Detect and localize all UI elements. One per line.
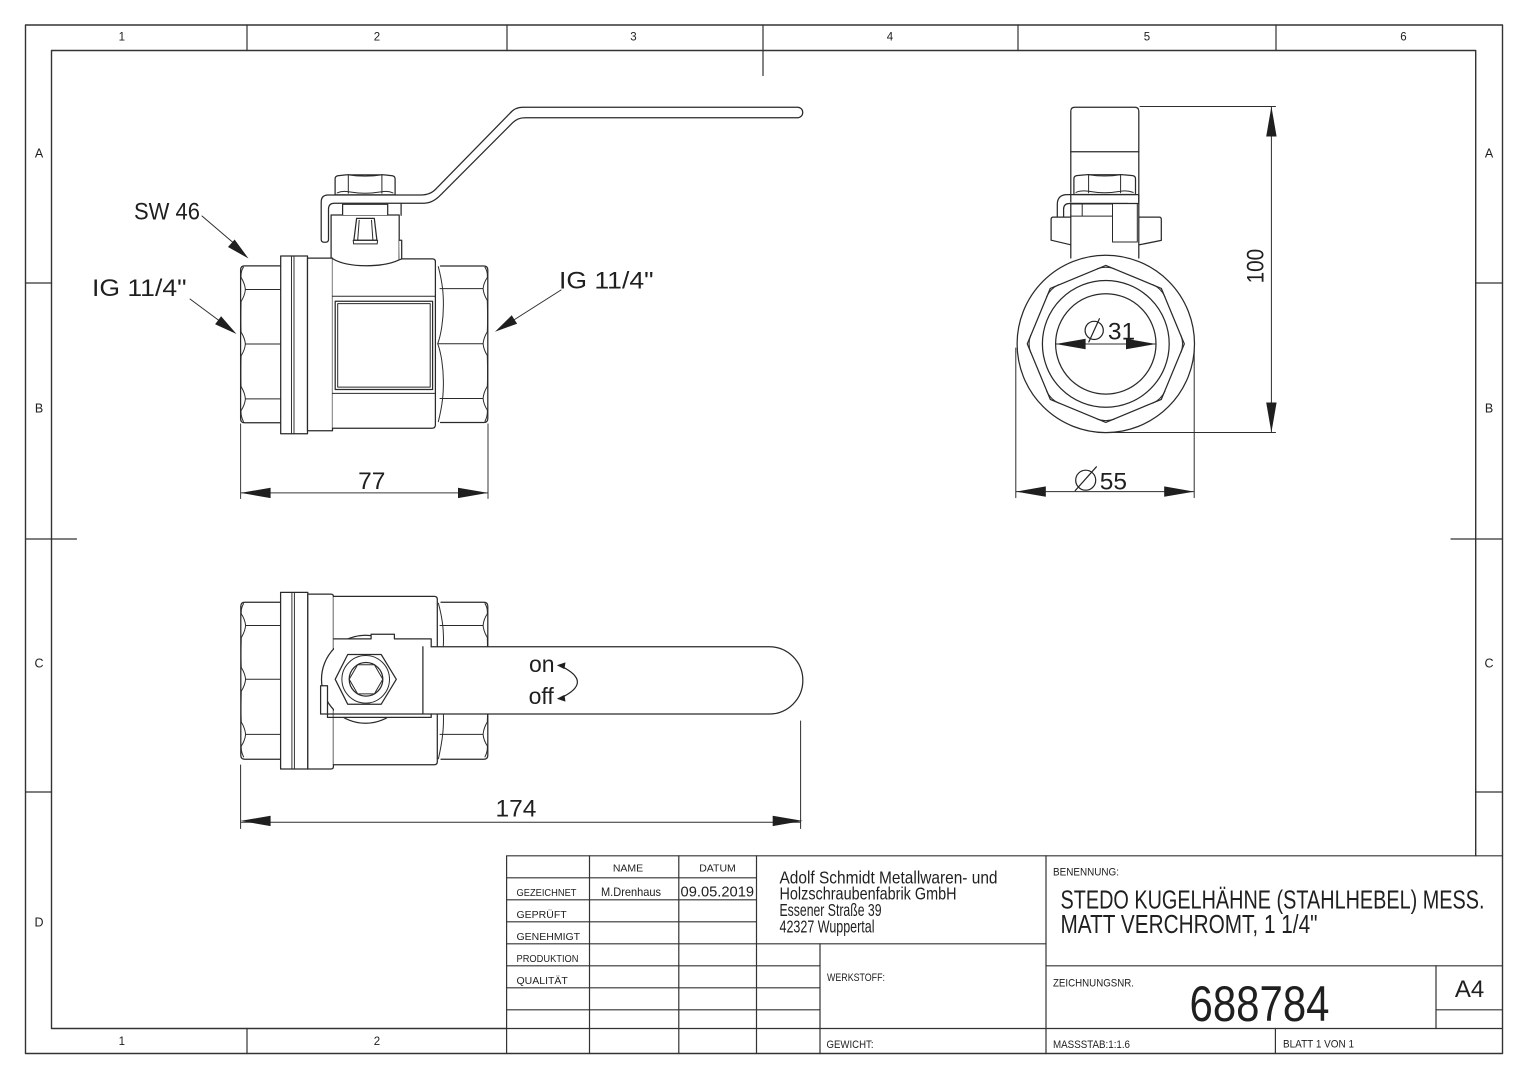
svg-text:A: A (1485, 147, 1494, 161)
svg-text:SW 46: SW 46 (134, 198, 200, 225)
svg-text:IG 11/4": IG 11/4" (559, 267, 654, 294)
svg-text:ZEICHNUNGSNR.: ZEICHNUNGSNR. (1053, 978, 1134, 990)
svg-text:2: 2 (374, 32, 380, 44)
svg-text:55: 55 (1100, 468, 1127, 495)
svg-text:on: on (529, 651, 555, 677)
svg-text:100: 100 (1242, 249, 1269, 284)
svg-text:GEZEICHNET: GEZEICHNET (517, 887, 578, 899)
svg-text:GEWICHT:: GEWICHT: (827, 1039, 874, 1051)
svg-text:B: B (1485, 402, 1493, 416)
svg-text:A: A (35, 147, 44, 161)
svg-text:688784: 688784 (1190, 976, 1330, 1032)
svg-text:6: 6 (1400, 32, 1406, 44)
svg-text:4: 4 (887, 32, 894, 44)
svg-text:MASSSTAB:1:1.6: MASSSTAB:1:1.6 (1053, 1039, 1130, 1051)
svg-text:GEPRÜFT: GEPRÜFT (517, 909, 568, 921)
svg-text:BENENNUNG:: BENENNUNG: (1053, 867, 1119, 879)
svg-text:IG 11/4": IG 11/4" (92, 275, 187, 302)
svg-text:B: B (35, 402, 43, 416)
svg-text:QUALITÄT: QUALITÄT (517, 975, 569, 987)
svg-text:NAME: NAME (613, 863, 643, 875)
svg-text:BLATT 1 VON 1: BLATT 1 VON 1 (1283, 1039, 1354, 1051)
svg-text:31: 31 (1108, 319, 1135, 346)
svg-text:C: C (34, 657, 43, 671)
svg-text:5: 5 (1144, 32, 1150, 44)
svg-text:D: D (34, 916, 43, 930)
svg-text:DATUM: DATUM (699, 863, 736, 875)
svg-text:42327 Wuppertal: 42327 Wuppertal (780, 917, 875, 937)
svg-text:off: off (529, 683, 555, 709)
svg-text:2: 2 (374, 1036, 380, 1048)
svg-text:3: 3 (630, 32, 636, 44)
svg-text:1: 1 (119, 32, 125, 44)
svg-text:GENEHMIGT: GENEHMIGT (517, 931, 581, 943)
svg-text:77: 77 (358, 468, 385, 495)
svg-text:M.Drenhaus: M.Drenhaus (601, 885, 661, 899)
svg-text:PRODUKTION: PRODUKTION (517, 953, 579, 965)
svg-text:MATT VERCHROMT, 1 1/4": MATT VERCHROMT, 1 1/4" (1061, 911, 1318, 939)
svg-text:C: C (1484, 657, 1493, 671)
svg-text:1: 1 (119, 1036, 125, 1048)
svg-text:09.05.2019: 09.05.2019 (681, 884, 755, 901)
svg-text:WERKSTOFF:: WERKSTOFF: (827, 972, 885, 984)
svg-text:174: 174 (496, 796, 537, 823)
svg-text:A4: A4 (1455, 976, 1484, 1003)
